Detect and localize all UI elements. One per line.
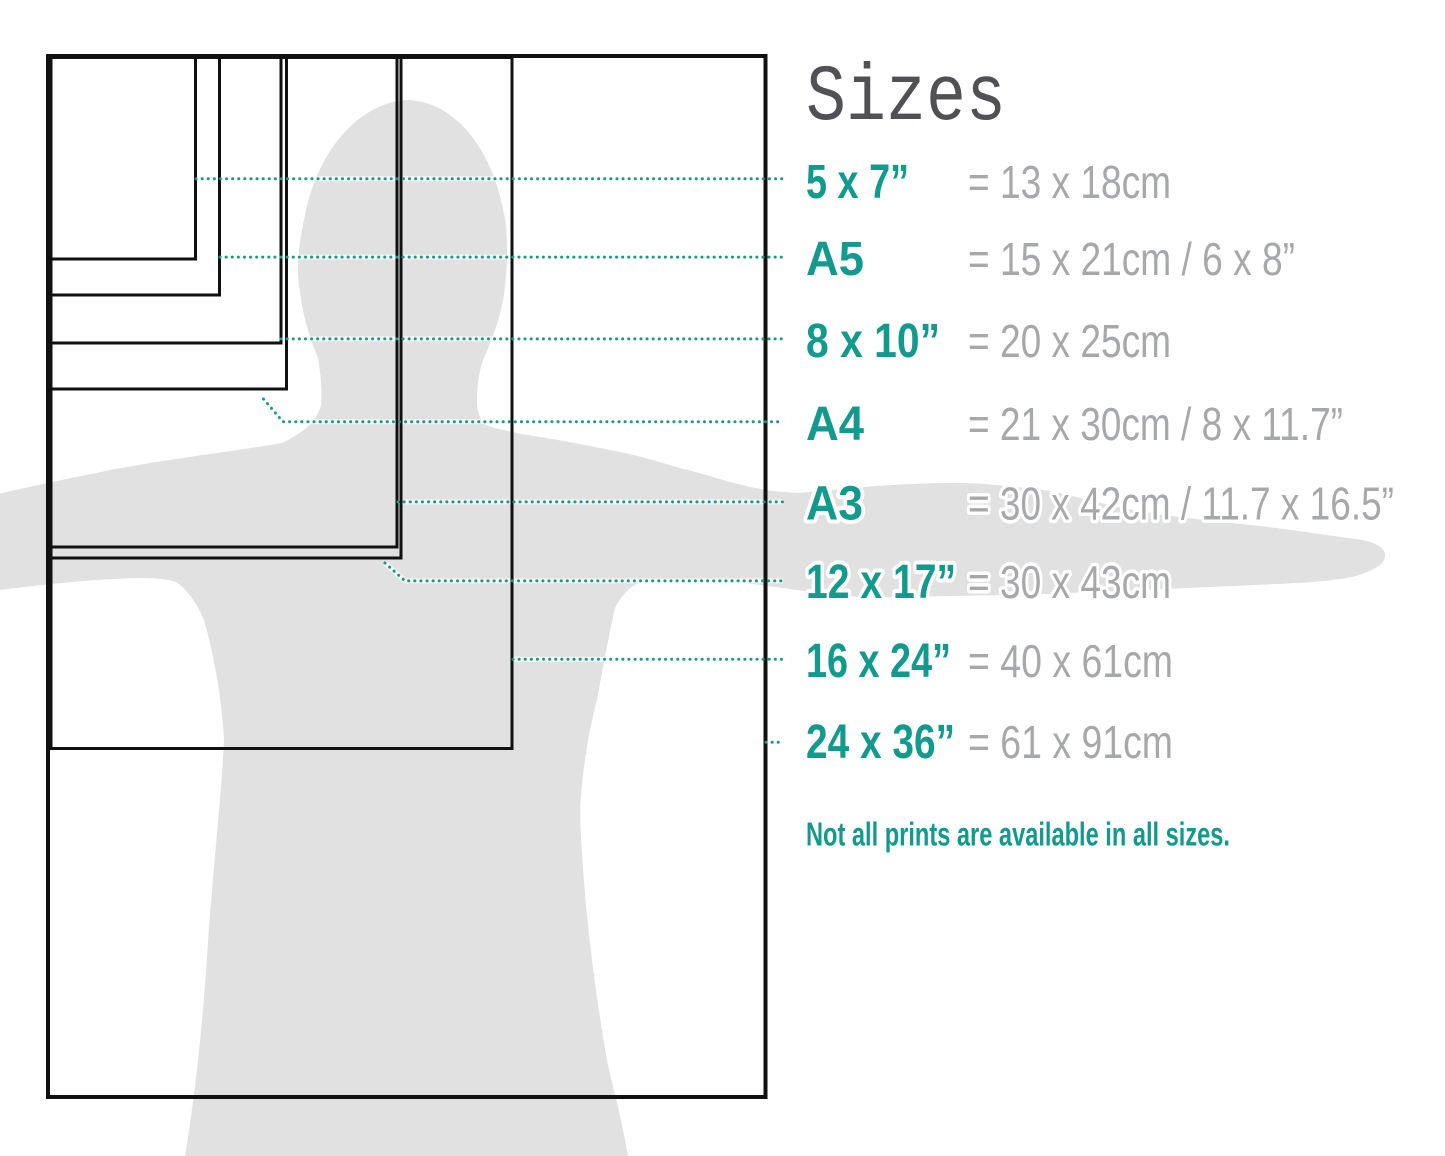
svg-text:= 40 x 61cm: = 40 x 61cm — [968, 635, 1173, 687]
svg-text:= 30 x 42cm / 11.7 x 16.5”: = 30 x 42cm / 11.7 x 16.5” — [968, 478, 1394, 530]
svg-text:= 21 x 30cm / 8 x 11.7”: = 21 x 30cm / 8 x 11.7” — [968, 398, 1343, 450]
svg-text:A5: A5 — [806, 233, 864, 286]
svg-text:= 13 x 18cm: = 13 x 18cm — [968, 156, 1171, 208]
svg-text:A4: A4 — [806, 398, 864, 451]
svg-text:12 x 17”: 12 x 17” — [806, 556, 956, 609]
svg-text:8 x 10”: 8 x 10” — [806, 315, 940, 368]
svg-text:A3: A3 — [806, 478, 863, 531]
svg-text:24 x 36”: 24 x 36” — [806, 716, 955, 769]
svg-text:= 20 x 25cm: = 20 x 25cm — [968, 315, 1171, 367]
svg-text:Sizes: Sizes — [806, 53, 1006, 144]
svg-text:= 30 x 43cm: = 30 x 43cm — [968, 556, 1171, 608]
svg-text:16 x 24”: 16 x 24” — [806, 635, 951, 688]
svg-text:= 15 x 21cm / 6 x 8”: = 15 x 21cm / 6 x 8” — [968, 233, 1295, 285]
svg-text:Not all prints are available i: Not all prints are available in all size… — [806, 816, 1230, 853]
svg-text:= 61 x 91cm: = 61 x 91cm — [968, 716, 1173, 768]
svg-text:5 x 7”: 5 x 7” — [806, 156, 909, 209]
